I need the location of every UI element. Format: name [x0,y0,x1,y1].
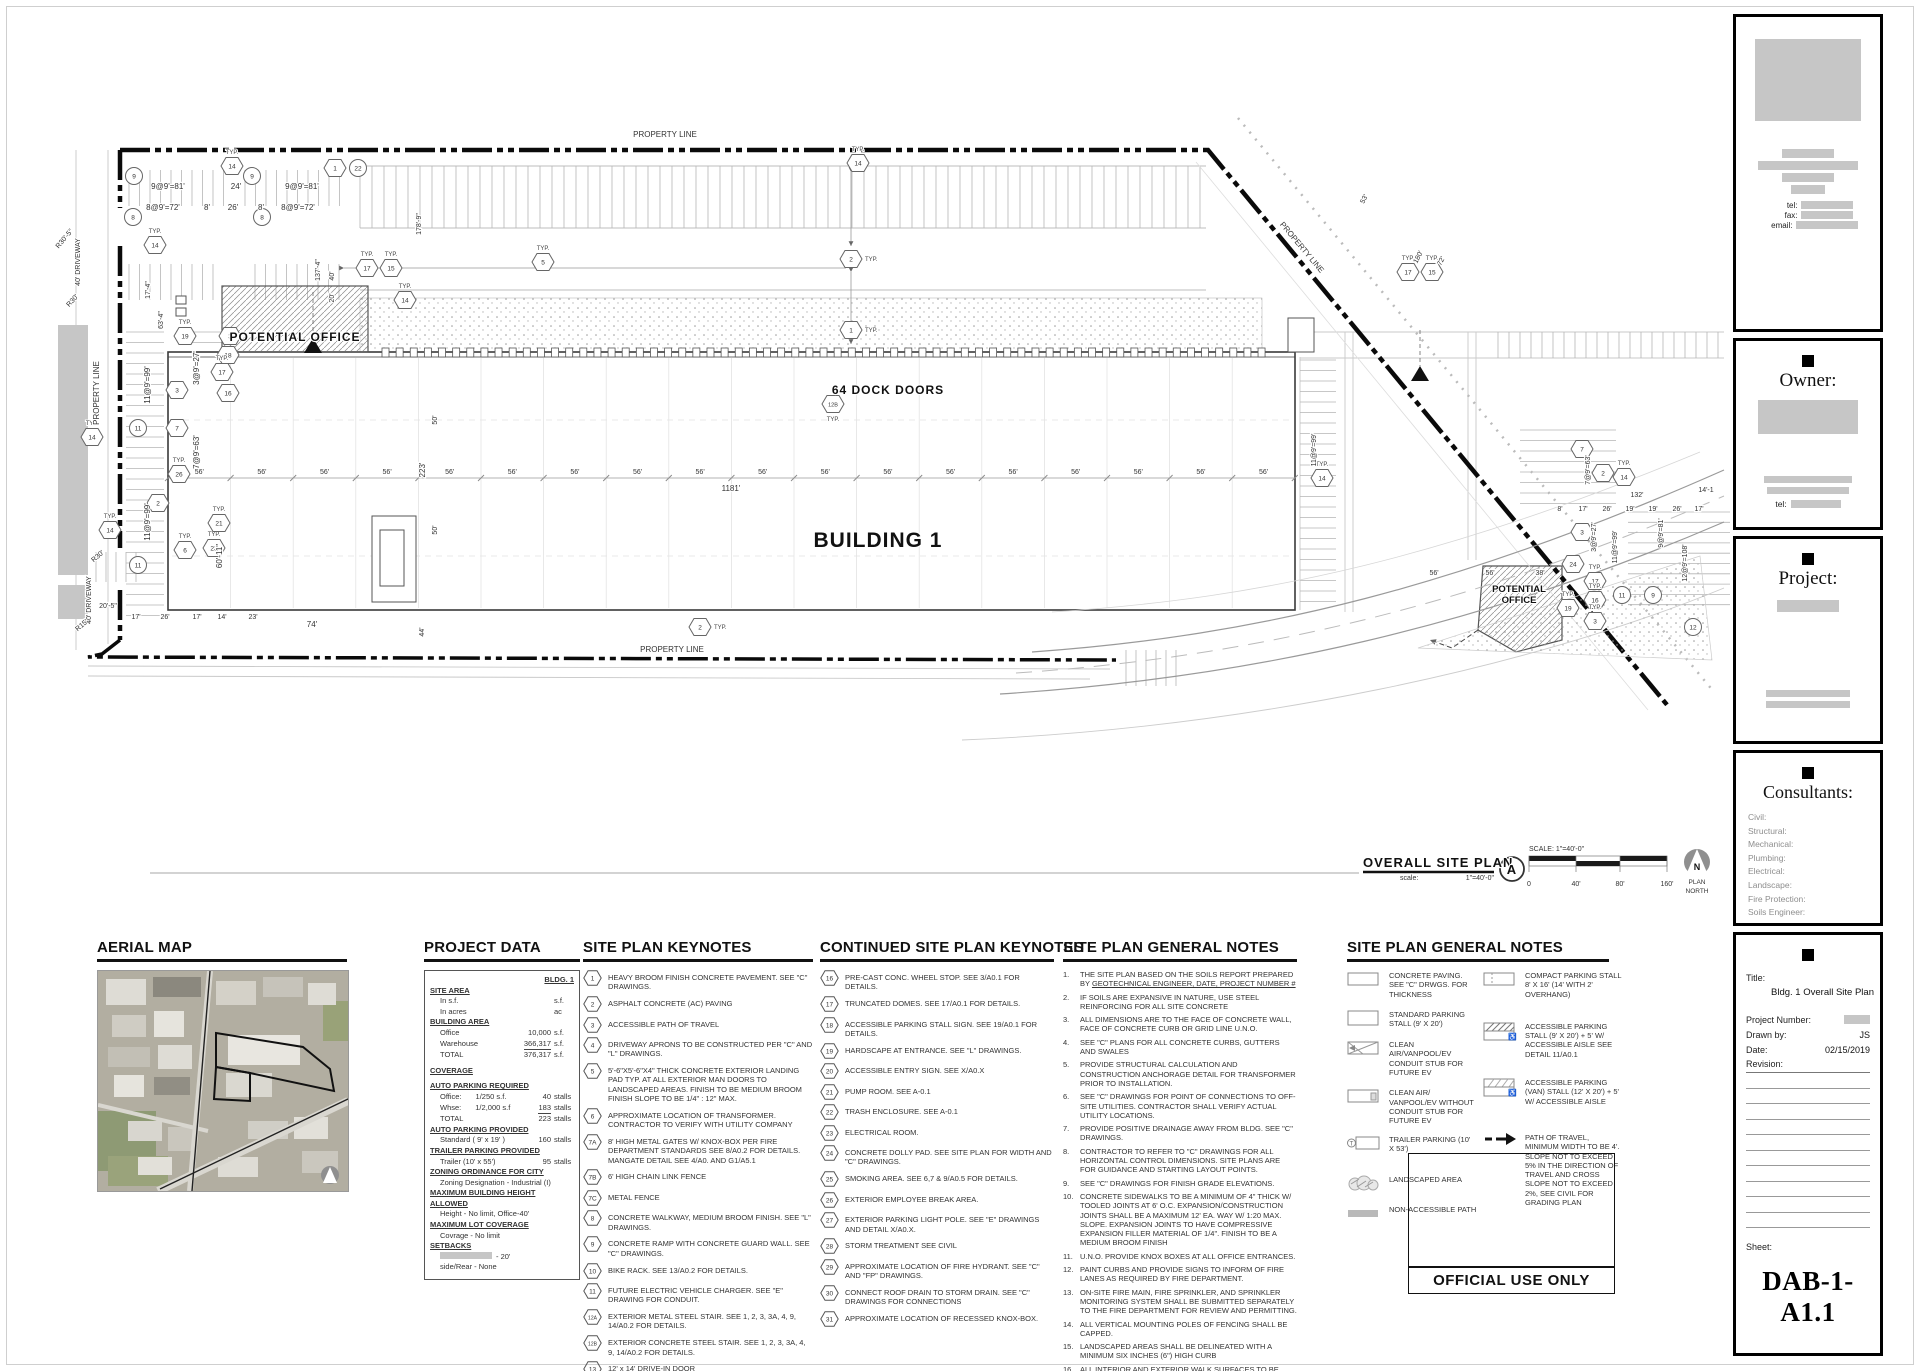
project-data-row: Office:1/250 s.f.40stalls [430,1092,574,1103]
keynote-item: 21PUMP ROOM. SEE A-0.1 [820,1084,1054,1100]
svg-text:17: 17 [363,265,371,272]
plan-annotation: 17' [1578,506,1587,513]
plan-keynote-bubble: 7 [1571,441,1593,458]
plan-keynote-bubble: 7 [166,420,188,437]
official-use-box: OFFICIAL USE ONLY [1408,1153,1615,1294]
keynote-hex-icon: 30 [820,1285,839,1301]
plan-keynote-bubble: 14TYP. [1613,461,1635,486]
svg-text:3: 3 [1580,529,1584,536]
plan-annotation: 11@9'=99' [1612,531,1619,564]
square-bullet-icon [1802,355,1814,367]
cleanair1-symbol-icon [1347,1039,1383,1059]
plan-annotation: 0 [1527,881,1531,888]
bay-dimension-label: 56' [1134,469,1143,476]
keynote-hex-icon: 12A [583,1309,602,1325]
email-label: email: [1759,221,1793,230]
svg-text:24: 24 [826,1151,834,1158]
svg-text:12B: 12B [828,402,838,408]
trailer-band [360,166,1206,290]
project-data-row: Trailer (10' x 55')95stalls [430,1157,574,1168]
drawn-by-label: Drawn by: [1746,1030,1787,1040]
keynote-hex-icon: 7A [583,1134,602,1150]
general-note: 4.SEE "C" PLANS FOR ALL CONCRETE CURBS, … [1063,1038,1297,1057]
plan-annotation: 26' [1602,506,1611,513]
svg-text:19: 19 [826,1048,834,1055]
keynote-hex-icon: 17 [820,996,839,1012]
svg-text:11: 11 [135,425,142,432]
plan-annotation: 180' [1413,250,1425,265]
plan-annotation: 1181' [722,484,741,493]
keynote-hex-icon: 7C [583,1190,602,1206]
svg-text:21: 21 [826,1089,834,1096]
plan-annotation: 14'-1 [1698,487,1713,494]
aerial-map-image [97,970,349,1192]
consultants-heading: Consultants: [1736,782,1880,803]
plan-annotation: NORTH [1686,888,1709,895]
plan-annotation: POTENTIAL [1492,584,1546,595]
svg-text:TYP.: TYP. [1589,605,1602,611]
keynote-item: 6APPROXIMATE LOCATION OF TRANSFORMER. CO… [583,1108,813,1130]
compact-symbol-icon [1483,970,1519,990]
svg-text:2: 2 [849,256,853,263]
plan-annotation: 40' DRIVEWAY [86,576,93,624]
svg-text:16: 16 [224,390,232,397]
acc-symbol-icon: ♿ [1483,1021,1519,1049]
plan-annotation: R30'-5" [55,228,75,250]
keynote-item: 1HEAVY BROOM FINISH CONCRETE PAVEMENT. S… [583,970,813,992]
plan-annotation: R30' [90,550,105,564]
revision-line [1746,1135,1870,1151]
svg-text:14: 14 [1620,474,1628,481]
plan-annotation: 20' [329,293,336,302]
plan-annotation: 9@9'=81' [285,182,319,191]
svg-text:8: 8 [591,1216,595,1223]
plan-annotation: PROPERTY LINE [640,645,704,654]
bay-dimension-label: 56' [195,469,204,476]
bay-dimension-label: 56' [570,469,579,476]
legend-heading: SITE PLAN GENERAL NOTES [1347,940,1623,956]
svg-text:TYP.: TYP. [385,252,398,258]
plan-annotation: 17' [1694,506,1703,513]
keynote-hex-icon: 9 [583,1236,602,1252]
svg-text:21: 21 [215,520,223,527]
svg-text:14: 14 [854,160,862,167]
bay-dimension-label: 56' [1259,469,1268,476]
plan-keynote-bubble: 16 [217,385,239,402]
svg-text:TYP.: TYP. [179,320,192,326]
plan-keynote-bubble: 5TYP. [532,246,554,271]
project-data-row: SITE AREA [430,986,574,997]
plan-annotation: 160' [1660,881,1673,888]
project-data-heading: PROJECT DATA [424,940,580,956]
svg-text:14: 14 [88,434,96,441]
keynote-item: 3ACCESSIBLE PATH OF TRAVEL [583,1017,813,1033]
revision-line [1746,1213,1870,1229]
keynote-hex-icon: 6 [583,1108,602,1124]
legend-item-compact: COMPACT PARKING STALL 8' X 16' (14' WITH… [1483,970,1623,999]
plan-keynote-bubble: 1 [324,160,346,177]
revision-label: Revision: [1746,1059,1870,1073]
plan-keynote-bubble: 9 [1645,587,1662,604]
keynote-item: 12BEXTERIOR CONCRETE STEEL STAIR. SEE 1,… [583,1335,813,1357]
legend-item-trailer: TTRAILER PARKING (10' X 53') [1347,1134,1477,1154]
svg-text:5: 5 [541,259,545,266]
keynote-hex-icon: 26 [820,1192,839,1208]
svg-text:1: 1 [849,327,853,334]
project-data-row: MAXIMUM LOT COVERAGE [430,1220,574,1231]
legend-item-cleanair1: CLEAN AIR/VANPOOL/EV CONDUIT STUB FOR FU… [1347,1039,1477,1077]
svg-text:14: 14 [228,163,236,170]
svg-text:TYP.: TYP. [179,534,192,540]
plan-annotation: 40' DRIVEWAY [75,238,82,286]
plan-keynote-bubble: 3 [166,382,188,399]
svg-text:16: 16 [826,975,834,982]
plan-keynote-bubble: 14TYP. [144,229,166,254]
standard-symbol-icon [1347,1009,1383,1029]
general-note: 3.ALL DIMENSIONS ARE TO THE FACE OF CONC… [1063,1015,1297,1034]
keynote-item: 26EXTERIOR EMPLOYEE BREAK AREA. [820,1192,1054,1208]
project-data-row: AUTO PARKING PROVIDED [430,1125,574,1136]
general-note: 15.LANDSCAPED AREAS SHALL BE DELINEATED … [1063,1342,1297,1361]
project-data-row: - 20' [430,1252,574,1263]
plan-annotation: 11@9'=99' [143,503,152,541]
project-number-redacted [1844,1015,1870,1024]
keynote-item: 27EXTERIOR PARKING LIGHT POLE. SEE "E" D… [820,1212,1054,1234]
project-data-row: Height - No limit, Office-40' [430,1209,574,1220]
svg-text:3: 3 [1593,618,1597,625]
svg-text:7A: 7A [589,1139,598,1146]
svg-text:TYP.: TYP. [173,458,186,464]
svg-text:27: 27 [826,1218,834,1225]
keynote-item: 2ASPHALT CONCRETE (AC) PAVING [583,996,813,1012]
plan-annotation: 3@9'=27' [192,351,201,385]
svg-text:TYP.: TYP. [1618,461,1631,467]
bay-dimension-label: 56' [320,469,329,476]
svg-text:7: 7 [175,425,179,432]
bay-dimension-label: 56' [633,469,642,476]
keynote-item: 4DRIVEWAY APRONS TO BE CONSTRUCTED PER "… [583,1037,813,1059]
project-data-row: BLDG. 1 [430,975,574,986]
svg-text:7: 7 [1580,446,1584,453]
plan-annotation: 14' [217,614,226,621]
keynote-item: 23ELECTRICAL ROOM. [820,1125,1054,1141]
svg-text:TYP.: TYP. [865,328,878,334]
plan-keynote-bubble: 14TYP. [221,150,243,175]
plan-annotation: SCALE: 1"=40'-0" [1529,846,1585,853]
project-data-row: MAXIMUM BUILDING HEIGHT ALLOWED [430,1188,574,1209]
keynotes-heading: SITE PLAN KEYNOTES [583,940,813,956]
keynote-item: 7CMETAL FENCE [583,1190,813,1206]
legend-section: SITE PLAN GENERAL NOTES CONCRETE PAVING.… [1347,940,1623,970]
plan-annotation: PROPERTY LINE [633,130,697,139]
plan-annotation: 20'-5" [99,603,117,610]
keynote-item: 31APPROXIMATE LOCATION OF RECESSED KNOX-… [820,1311,1054,1327]
plan-annotation: 23' [248,614,257,621]
svg-text:TYP.: TYP. [1589,584,1602,590]
general-note: 2.IF SOILS ARE EXPANSIVE IN NATURE, USE … [1063,993,1297,1012]
keynote-hex-icon: 16 [820,970,839,986]
plan-keynote-bubble: 15TYP. [380,252,402,277]
svg-text:17: 17 [826,1001,834,1008]
plan-annotation: 132' [1630,492,1643,499]
project-data-row: TOTAL376,317s.f. [430,1050,574,1061]
plan-annotation: 8' [204,203,210,212]
bay-dimension-label: 56' [445,469,454,476]
sheet-label: Sheet: [1746,1242,1870,1252]
project-heading: Project: [1736,568,1880,590]
bay-dimension-label: 56' [758,469,767,476]
keynote-item: 19HARDSCAPE AT ENTRANCE. SEE "L" DRAWING… [820,1043,1054,1059]
svg-text:1: 1 [333,165,337,172]
svg-text:12A: 12A [588,1316,598,1322]
general-notes-section: SITE PLAN GENERAL NOTES 1.THE SITE PLAN … [1063,940,1297,1371]
owner-name-redacted [1758,400,1858,434]
title-block: tel: fax: email: Owner: tel: Project: Co… [1733,0,1889,1371]
svg-text:TYP.: TYP. [216,356,229,362]
redacted-street-label [58,325,88,575]
project-data-table: BLDG. 1SITE AREAIn s.f.s.f.In acresacBUI… [424,970,580,1280]
svg-text:22: 22 [354,165,362,172]
plan-annotation: 56' [1485,570,1494,577]
consultant-label: Soils Engineer: [1748,906,1880,920]
general-note: 7.PROVIDE POSITIVE DRAINAGE AWAY FROM BL… [1063,1124,1297,1143]
svg-text:5: 5 [591,1069,595,1076]
general-note: 11.U.N.O. PROVIDE KNOX BOXES AT ALL OFFI… [1063,1252,1297,1261]
keynote-item: 22TRASH ENCLOSURE. SEE A-0.1 [820,1104,1054,1120]
plan-annotation: 223' [418,462,427,477]
revision-line [1746,1151,1870,1167]
continued-keynotes-heading: CONTINUED SITE PLAN KEYNOTES [820,940,1054,956]
svg-text:8: 8 [260,214,264,221]
revision-line [1746,1073,1870,1089]
keynote-hex-icon: 4 [583,1037,602,1053]
plan-annotation: 53' [1359,194,1369,205]
project-name-redacted [1777,600,1839,612]
plan-annotation: 80' [1615,881,1624,888]
consultant-label: Plumbing: [1748,852,1880,866]
nopath-symbol-icon [1347,1204,1383,1224]
keynote-hex-icon: 22 [820,1104,839,1120]
plan-keynote-bubble: 14TYP. [394,284,416,309]
svg-text:♿: ♿ [1508,1032,1517,1041]
general-notes-list: 1.THE SITE PLAN BASED ON THE SOILS REPOR… [1063,970,1297,1371]
general-note: 9.SEE "C" DRAWINGS FOR FINISH GRADE ELEV… [1063,1179,1297,1188]
bay-dimension-label: 56' [257,469,266,476]
sheet-number: DAB-1-A1.1 [1736,1266,1880,1328]
svg-text:2: 2 [591,1001,595,1008]
bay-dimension-label: 56' [1071,469,1080,476]
consultants-list: Civil:Structural:Mechanical:Plumbing:Ele… [1748,811,1880,920]
keynote-item: 17TRUNCATED DOMES. SEE 17/A0.1 FOR DETAI… [820,996,1054,1012]
plan-annotation: 24' [231,182,242,191]
plan-keynote-bubble: 11 [1614,587,1631,604]
site-plan-drawing: 56'56'56'56'56'56'56'56'56'56'56'56'56'5… [0,0,1730,935]
plan-annotation: N [1694,862,1701,872]
svg-text:TYP.: TYP. [714,625,727,631]
plan-annotation: 8@9'=72' [146,203,180,212]
owner-tel-label: tel: [1775,499,1786,509]
keynote-hex-icon: 19 [820,1043,839,1059]
general-note: 5.PROVIDE STRUCTURAL CALCULATION AND CON… [1063,1060,1297,1088]
keynote-hex-icon: 23 [820,1125,839,1141]
plan-keynote-bubble: 9 [126,168,143,185]
general-note: 14.ALL VERTICAL MOUNTING POLES OF FENCIN… [1063,1320,1297,1339]
svg-text:26: 26 [826,1197,834,1204]
keynote-hex-icon: 8 [583,1210,602,1226]
owner-box: Owner: tel: [1733,338,1883,530]
keynote-item: 7B6' HIGH CHAIN LINK FENCE [583,1169,813,1185]
date-label: Date: [1746,1045,1768,1055]
svg-text:7C: 7C [588,1195,597,1202]
legend-item-cleanair2: CLEAN AIR/ VANPOOL/EV WITHOUT CONDUIT ST… [1347,1087,1477,1125]
svg-text:TYP.: TYP. [226,150,239,156]
bay-dimension-label: 56' [383,469,392,476]
dock-doors [382,348,1265,357]
project-data-row: Standard ( 9' x 19' )160stalls [430,1135,574,1146]
plan-keynote-bubble: 11 [130,420,147,437]
plan-keynote-bubble: 24 [1562,556,1584,573]
plan-annotation: 38' [1535,570,1544,577]
plan-annotation: 40' [1571,881,1580,888]
legend-item-standard: STANDARD PARKING STALL (9' X 20') [1347,1009,1477,1029]
keynote-item: 55'-6"X5'-6"X4" THICK CONCRETE EXTERIOR … [583,1063,813,1103]
revision-line [1746,1182,1870,1198]
svg-text:TYP.: TYP. [149,229,162,235]
keynote-hex-icon: 31 [820,1311,839,1327]
keynote-item: 12AEXTERIOR METAL STEEL STAIR. SEE 1, 2,… [583,1309,813,1331]
keynote-item: 24CONCRETE DOLLY PAD. SEE SITE PLAN FOR … [820,1145,1054,1167]
plan-keynote-bubble: 9 [244,168,261,185]
plan-annotation: 178'-9" [416,213,423,235]
consultants-box: Consultants: Civil:Structural:Mechanical… [1733,750,1883,926]
official-use-label: OFFICIAL USE ONLY [1409,1266,1614,1293]
bay-dimension-label: 56' [1009,469,1018,476]
svg-text:11: 11 [135,562,142,569]
keynote-hex-icon: 1 [583,970,602,986]
svg-text:12: 12 [1689,624,1697,631]
keynotes-list: 16PRE-CAST CONC. WHEEL STOP. SEE 3/A0.1 … [820,970,1054,1327]
general-note: 1.THE SITE PLAN BASED ON THE SOILS REPOR… [1063,970,1297,989]
plan-annotation: POTENTIAL OFFICE [229,330,360,344]
svg-text:9: 9 [1651,592,1655,599]
svg-text:25: 25 [826,1177,834,1184]
svg-text:TYP.: TYP. [1562,592,1575,598]
keynote-hex-icon: 11 [583,1283,602,1299]
plan-annotation: 19' [1625,506,1634,513]
plan-annotation: PLAN [1689,879,1706,886]
revision-line [1746,1166,1870,1182]
date-value: 02/15/2019 [1825,1045,1870,1055]
general-note: 16.ALL INTERIOR AND EXTERIOR WALK SURFAC… [1063,1365,1297,1371]
svg-text:14: 14 [151,242,159,249]
svg-text:TYP.: TYP. [208,532,221,538]
legend-item-acc: ♿ACCESSIBLE PARKING STALL (9' X 20') + 5… [1483,1021,1623,1059]
project-data-row: TRAILER PARKING PROVIDED [430,1146,574,1157]
keynote-hex-icon: 7B [583,1169,602,1185]
landscape-symbol-icon [1347,1174,1383,1196]
project-data-row: In s.f.s.f. [430,996,574,1007]
plan-annotation: 26' [1672,506,1681,513]
general-note: 13.ON-SITE FIRE MAIN, FIRE SPRINKLER, AN… [1063,1288,1297,1316]
svg-text:3: 3 [591,1022,595,1029]
project-box: Project: [1733,536,1883,744]
keynote-hex-icon: 3 [583,1017,602,1033]
plan-annotation: R30' [66,293,81,308]
plan-keynote-bubble: 8 [125,209,142,226]
consultant-label: Civil: [1748,811,1880,825]
general-notes-heading: SITE PLAN GENERAL NOTES [1063,940,1297,956]
architect-address [1736,149,1880,194]
tel-label: tel: [1764,201,1798,210]
plan-keynote-bubble: 3 [1571,524,1593,541]
project-data-row: Zoning Designation - Industrial (I) [430,1178,574,1189]
aerial-map-section: AERIAL MAP [97,940,347,1192]
plan-annotation: 7@9'=63' [1585,455,1592,484]
plan-annotation: OFFICE [1502,595,1537,606]
keynote-item: 7A8' HIGH METAL GATES W/ KNOX-BOX PER FI… [583,1134,813,1165]
project-data-row: Whse:1/2,000 s.f183stalls [430,1103,574,1115]
continued-keynotes-section: CONTINUED SITE PLAN KEYNOTES 16PRE-CAST … [820,940,1054,1332]
plan-keynote-bubble: 17TYP. [356,252,378,277]
bay-dimension-label: 56' [1196,469,1205,476]
square-bullet-icon [1802,949,1814,961]
plan-annotation: 60'-11" [215,544,224,568]
consultant-label: Structural: [1748,825,1880,839]
legend-item-concrete: CONCRETE PAVING. SEE "C" DRWGS. FOR THIC… [1347,970,1477,999]
consultant-label: Fire Protection: [1748,893,1880,907]
project-data-row: Office10,000s.f. [430,1028,574,1039]
svg-text:♿: ♿ [1508,1088,1517,1097]
svg-text:15: 15 [387,265,395,272]
consultant-label: Landscape: [1748,879,1880,893]
project-data-row: Warehouse366,317s.f. [430,1039,574,1051]
plan-annotation: BUILDING 1 [813,529,942,552]
general-note: 8.CONTRACTOR TO REFER TO "C" DRAWINGS FO… [1063,1147,1297,1175]
consultant-label: Mechanical: [1748,838,1880,852]
plan-annotation: 8@9'=72' [281,203,315,212]
keynote-item: 1312' x 14' DRIVE-IN DOOR [583,1361,813,1371]
concrete-dolly-pad [360,298,1262,352]
svg-text:TYP.: TYP. [399,284,412,290]
plan-annotation: 1"=40'-0" [1466,875,1495,882]
legend-item-accvan: ♿ACCESSIBLE PARKING (VAN) STALL (12' X 2… [1483,1077,1623,1106]
keynotes-list: 1HEAVY BROOM FINISH CONCRETE PAVEMENT. S… [583,970,813,1371]
keynote-item: 9CONCRETE RAMP WITH CONCRETE GUARD WALL.… [583,1236,813,1258]
path-symbol-icon [1483,1132,1519,1148]
plan-annotation: 9@9'=81' [151,182,185,191]
square-bullet-icon [1802,767,1814,779]
svg-text:T: T [1350,1141,1354,1147]
svg-text:7B: 7B [589,1175,597,1182]
svg-text:28: 28 [826,1244,834,1251]
plan-annotation: 44' [419,627,426,636]
plan-keynote-bubble: 2TYP. [689,619,727,636]
concrete-symbol-icon [1347,970,1383,990]
keynote-hex-icon: 2 [583,996,602,1012]
svg-text:22: 22 [826,1110,834,1117]
svg-text:19: 19 [1564,605,1572,612]
keynote-hex-icon: 28 [820,1238,839,1254]
accvan-symbol-icon: ♿ [1483,1077,1519,1105]
svg-text:11: 11 [589,1288,596,1295]
plan-annotation: 63'-4" [158,311,165,329]
cleanair2-symbol-icon [1347,1087,1383,1107]
svg-text:9: 9 [250,173,254,180]
svg-text:TYP.: TYP. [213,507,226,513]
keynote-item: 8CONCRETE WALKWAY, MEDIUM BROOM FINISH. … [583,1210,813,1232]
plan-keynote-bubble: 11 [130,557,147,574]
plan-annotation: 7@9'=63' [192,435,201,469]
